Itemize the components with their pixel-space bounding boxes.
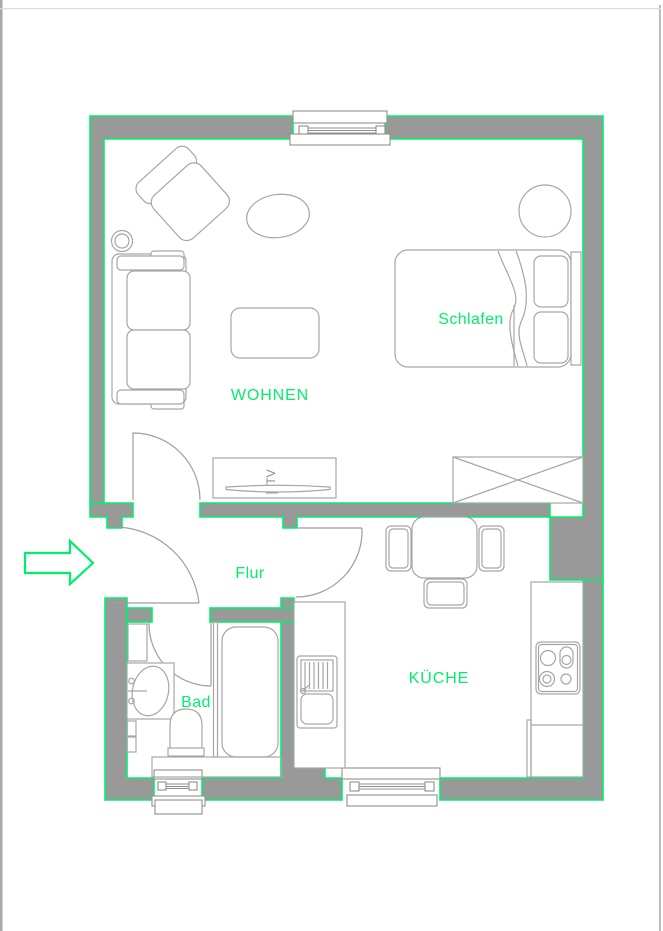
small-plant xyxy=(112,231,133,252)
kitchen-counter-left xyxy=(294,602,345,768)
wall-bad-jamb-left xyxy=(127,608,152,622)
label-bad: Bad xyxy=(181,694,211,711)
floorplan-page: TV xyxy=(0,0,663,931)
door-living-room xyxy=(133,433,200,500)
wardrobe xyxy=(453,457,583,503)
page-border-left xyxy=(0,0,3,931)
label-flur: Flur xyxy=(235,565,264,582)
door-entrance xyxy=(112,527,199,603)
wall-living-flur-band xyxy=(200,503,550,528)
sofa xyxy=(112,251,190,409)
label-wohnen: WOHNEN xyxy=(231,387,309,404)
page-border-right xyxy=(659,5,661,931)
entrance-arrow-icon xyxy=(25,541,93,584)
floorplan-drawing: TV xyxy=(0,0,663,931)
label-schlafen: Schlafen xyxy=(438,311,503,328)
label-kueche: KÜCHE xyxy=(409,669,470,687)
toilet xyxy=(168,709,204,756)
coffee-table xyxy=(231,308,319,358)
pouf xyxy=(244,190,312,241)
bath-radiator xyxy=(127,721,136,752)
tv-sideboard: TV xyxy=(213,458,336,498)
window-top xyxy=(290,111,390,145)
armchair xyxy=(132,143,235,246)
tv-label: TV xyxy=(264,469,278,484)
page-border-top xyxy=(0,8,661,9)
sleeping-area-furniture xyxy=(395,185,581,367)
kitchen-counter-right xyxy=(527,582,583,777)
bath-shelf xyxy=(128,624,147,661)
wall-living-flur-left xyxy=(90,503,133,528)
bed xyxy=(395,250,581,367)
kitchen-furniture xyxy=(294,517,583,777)
wall-bad-jamb-right xyxy=(210,608,294,622)
door-kitchen xyxy=(296,528,362,597)
window-kitchen xyxy=(342,768,440,806)
large-plant xyxy=(519,185,571,237)
dining-table-set xyxy=(386,517,504,608)
washbasin xyxy=(127,663,174,719)
